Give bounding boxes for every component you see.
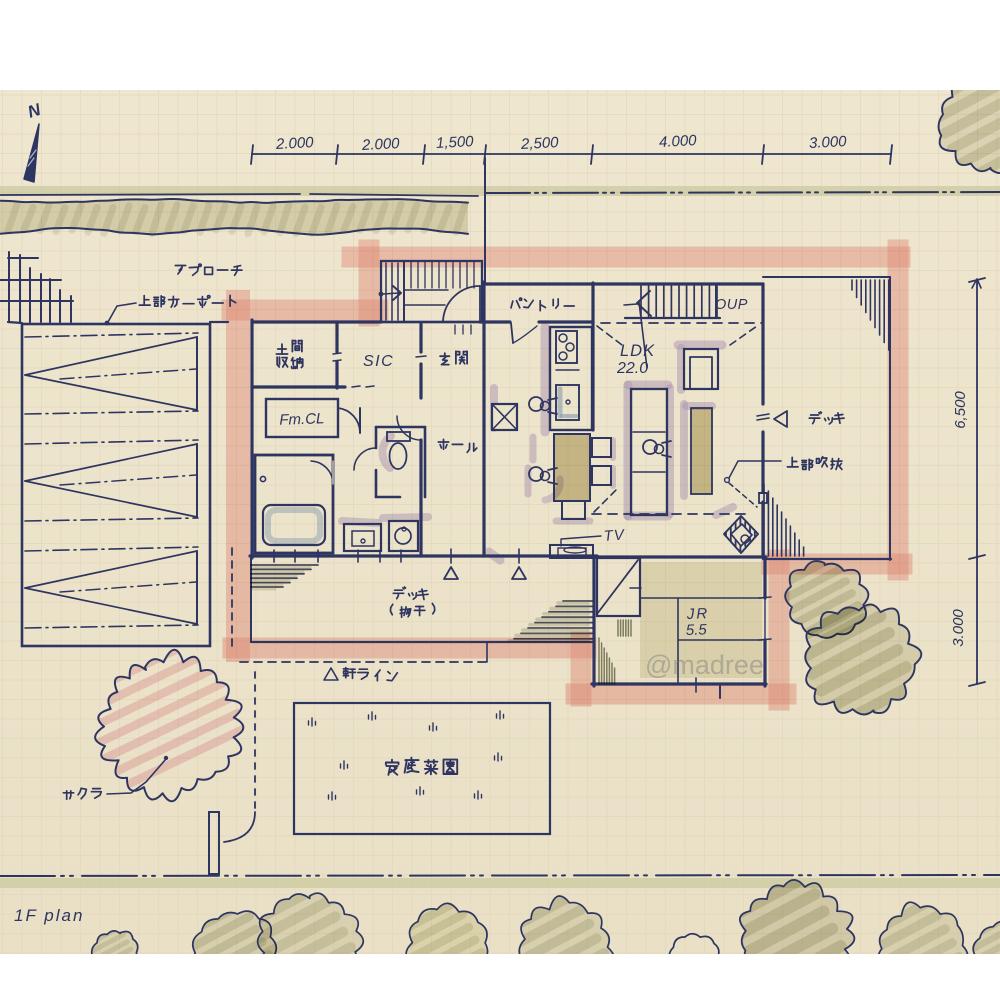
svg-text:5.5: 5.5 — [686, 621, 708, 639]
svg-text:1F plan: 1F plan — [14, 906, 84, 925]
svg-text:1,500: 1,500 — [436, 133, 475, 152]
svg-text:Fm.CL: Fm.CL — [279, 410, 325, 429]
svg-text:3.000: 3.000 — [950, 609, 967, 647]
svg-text:SIC: SIC — [363, 353, 394, 370]
svg-text:LDK: LDK — [620, 342, 655, 360]
svg-text:2.000: 2.000 — [361, 135, 401, 154]
svg-text:TV: TV — [603, 526, 626, 545]
svg-text:3.000: 3.000 — [809, 133, 848, 152]
svg-text:@madree: @madree — [645, 650, 764, 680]
svg-text:4.000: 4.000 — [659, 132, 698, 151]
svg-text:2.000: 2.000 — [275, 134, 315, 153]
svg-text:OUP: OUP — [715, 297, 748, 313]
svg-text:22.0: 22.0 — [616, 360, 648, 377]
svg-text:6,500: 6,500 — [952, 391, 969, 429]
svg-text:2,500: 2,500 — [520, 134, 560, 153]
